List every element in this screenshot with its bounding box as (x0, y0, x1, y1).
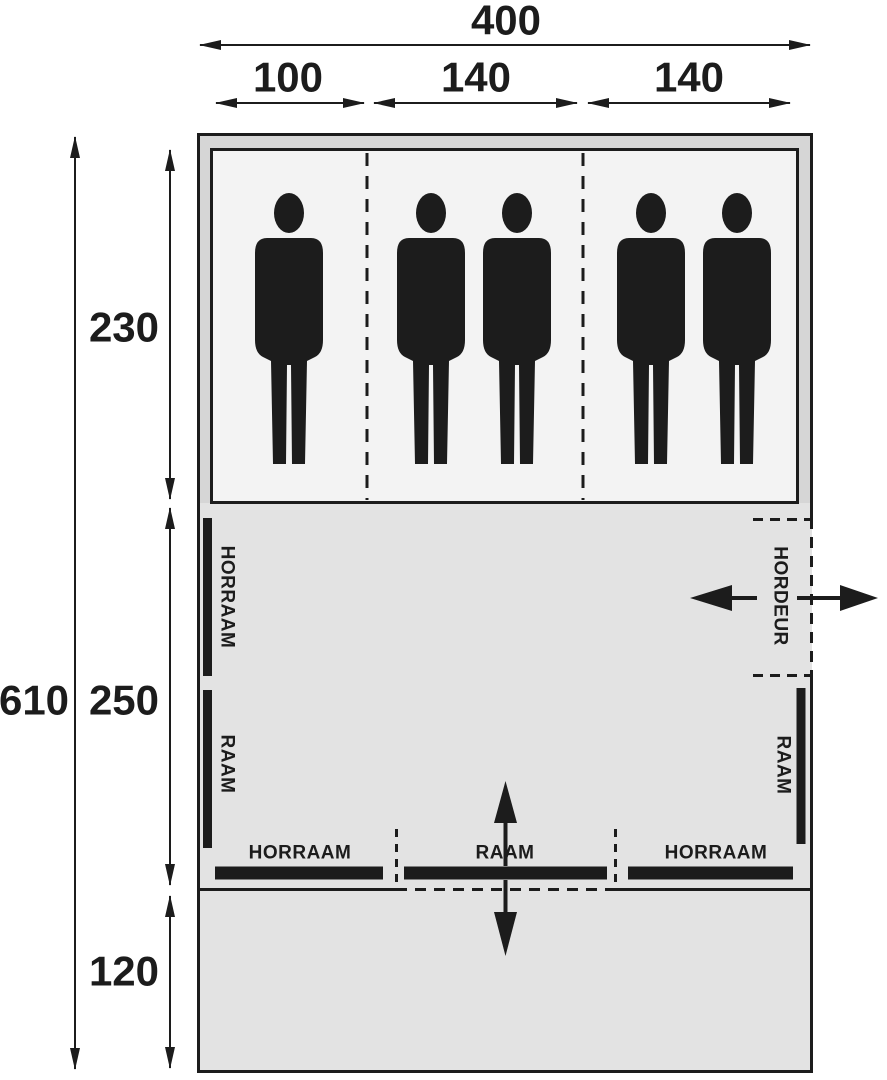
label-front-window-right: HORRAAM (665, 843, 768, 864)
dim-depth-seg3: 120 (89, 948, 159, 995)
label-right-window: RAAM (773, 736, 794, 795)
label-front-window-center: RAAM (476, 843, 535, 864)
label-right-door: HORDEUR (770, 546, 791, 646)
door-arrow-head-right (840, 585, 878, 611)
window-bar-front-right-horraam (628, 867, 793, 880)
floorplan-canvas: 400 100 140 140 610 230 250 120 HORRAAM … (0, 0, 887, 1080)
dim-width-total: 400 (471, 0, 541, 44)
dim-depth-seg1: 230 (89, 304, 159, 351)
label-left-window-top: HORRAAM (217, 546, 238, 649)
tent-floorplan-diagram: 400 100 140 140 610 230 250 120 HORRAAM … (0, 0, 887, 1080)
dim-depth-total: 610 (0, 677, 69, 724)
label-front-window-left: HORRAAM (249, 843, 352, 864)
dim-width-seg2: 140 (441, 54, 511, 101)
label-left-window-bottom: RAAM (217, 735, 238, 794)
window-bar-left-raam (203, 690, 212, 848)
dim-depth-seg2: 250 (89, 677, 159, 724)
window-bar-right-raam (797, 688, 806, 844)
window-bar-front-left-horraam (215, 867, 383, 880)
dim-width-seg3: 140 (654, 54, 724, 101)
window-bar-left-horraam (203, 518, 212, 676)
window-bar-front-center-raam (404, 867, 607, 880)
dim-width-seg1: 100 (253, 54, 323, 101)
